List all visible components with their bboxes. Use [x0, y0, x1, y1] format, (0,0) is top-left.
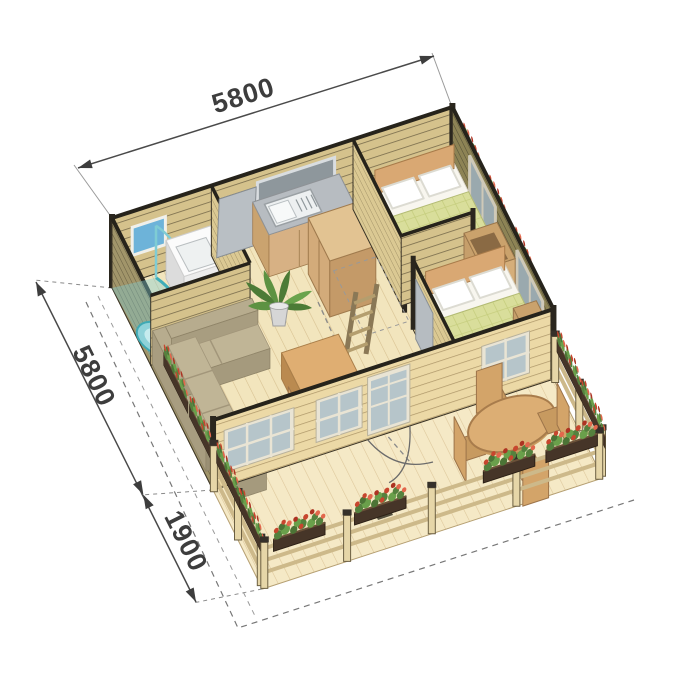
dimension-label-depth: 5800 [66, 341, 121, 412]
floor-plan-svg: 5800 5800 1900 [0, 0, 700, 700]
bathroom-door-panel [217, 187, 257, 258]
floor-plan-page: 5800 5800 1900 [0, 0, 700, 700]
dimension-label-width: 5800 [208, 71, 278, 119]
